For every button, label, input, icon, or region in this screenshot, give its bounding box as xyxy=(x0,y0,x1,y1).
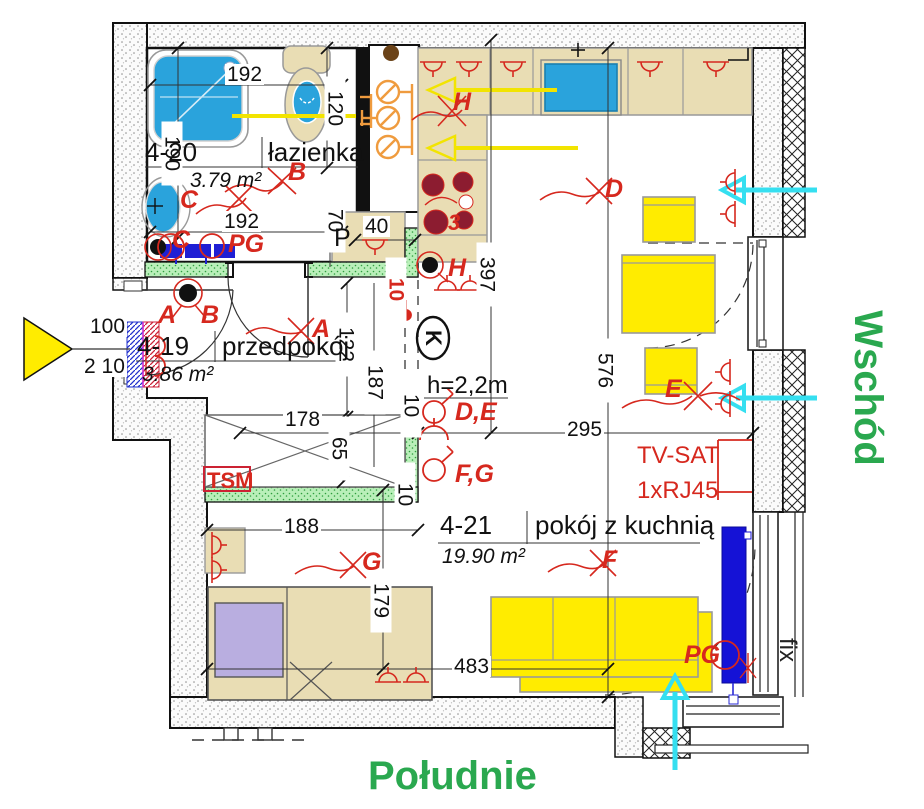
point-c2-bath: C xyxy=(172,228,190,253)
room-area-living: 19.90 m² xyxy=(442,546,525,567)
tv-sat-label: TV-SAT xyxy=(637,444,719,468)
tv-sat-outlet xyxy=(718,440,752,500)
dim-entry-width: 100 xyxy=(88,316,127,337)
dim-entry-height: 2 10 xyxy=(82,356,127,377)
point-pg-sofa: PG xyxy=(684,643,720,668)
dim-room-width: 295 xyxy=(565,419,604,440)
bed xyxy=(208,587,432,700)
vent-label: K xyxy=(422,308,444,368)
sofa xyxy=(491,597,712,692)
ceiling-height-label: h=2,2m xyxy=(427,374,508,398)
point-h-kitchen: H xyxy=(453,90,471,115)
room-name-living: pokój z kuchnią xyxy=(535,512,714,538)
dim-wardrobe-width: 178 xyxy=(283,409,322,430)
room-id-living: 4-21 xyxy=(440,512,492,538)
dim-kitchen-depth: 397 xyxy=(477,243,498,307)
burner-count-label: 3 xyxy=(448,212,460,234)
room-name-bathroom: łazienka xyxy=(268,139,363,165)
pillow xyxy=(215,603,283,677)
dim-bath-width-bottom: 192 xyxy=(222,211,261,232)
balcony-window-east xyxy=(748,237,783,350)
point-b-bath: B xyxy=(288,160,306,185)
balcony-door-south xyxy=(655,697,808,753)
point-a-hall: A xyxy=(312,317,330,342)
bedside-table xyxy=(205,528,245,573)
point-g-room: G xyxy=(362,550,381,575)
rj45-label: 1xRJ45 xyxy=(637,479,718,503)
radiator xyxy=(722,527,751,704)
floor-plan: 192 120 190 192 70 40 397 576 295 122 18… xyxy=(0,0,924,809)
expansion-joint xyxy=(192,728,305,740)
dim-bed-length: 179 xyxy=(371,569,392,633)
point-a-hall-lamp: A xyxy=(158,303,176,328)
dim-wall-thickness-b: 10 xyxy=(401,374,422,438)
point-pg-bath: PG xyxy=(228,232,264,257)
point-f-room: F xyxy=(602,548,617,573)
point-h2-kitchen: H xyxy=(448,256,466,281)
room-area-bathroom: 3.79 m² xyxy=(190,170,261,191)
room-area-hall: 3.86 m² xyxy=(142,364,213,385)
dim-wall-thickness-a: 10 xyxy=(386,258,407,322)
point-b-hall-lamp: B xyxy=(201,303,219,328)
dim-bed-width: 188 xyxy=(282,516,321,537)
dim-room-height: 576 xyxy=(595,339,616,403)
point-c-bath: C xyxy=(180,188,198,213)
compass-south: Południe xyxy=(368,756,537,796)
room-id-hall: 4-19 xyxy=(137,333,189,359)
tsm-label: TSM xyxy=(207,470,253,492)
point-e-room: E xyxy=(665,377,682,402)
fix-window-label: fix xyxy=(775,620,799,680)
room-id-bathroom: 4-20 xyxy=(145,139,197,165)
dim-toilet-wall: 120 xyxy=(325,77,346,141)
dining-set xyxy=(622,197,715,394)
dim-wardrobe-depth: 65 xyxy=(329,417,350,481)
dim-shaft-width: 40 xyxy=(363,216,390,237)
dim-bath-width-top: 192 xyxy=(225,64,264,85)
switch-fg: F,G xyxy=(455,462,494,487)
compass-east: Wschód xyxy=(848,298,888,478)
point-d-room: D xyxy=(605,177,623,202)
dim-wall-thickness-c: 10 xyxy=(395,463,416,527)
dim-south-wall: 483 xyxy=(452,656,491,677)
shaft-label: P xyxy=(334,226,351,251)
dim-hall-total: 187 xyxy=(365,351,386,415)
room-name-hall: przedpokój xyxy=(222,333,349,359)
switch-de: D,E xyxy=(455,400,497,425)
